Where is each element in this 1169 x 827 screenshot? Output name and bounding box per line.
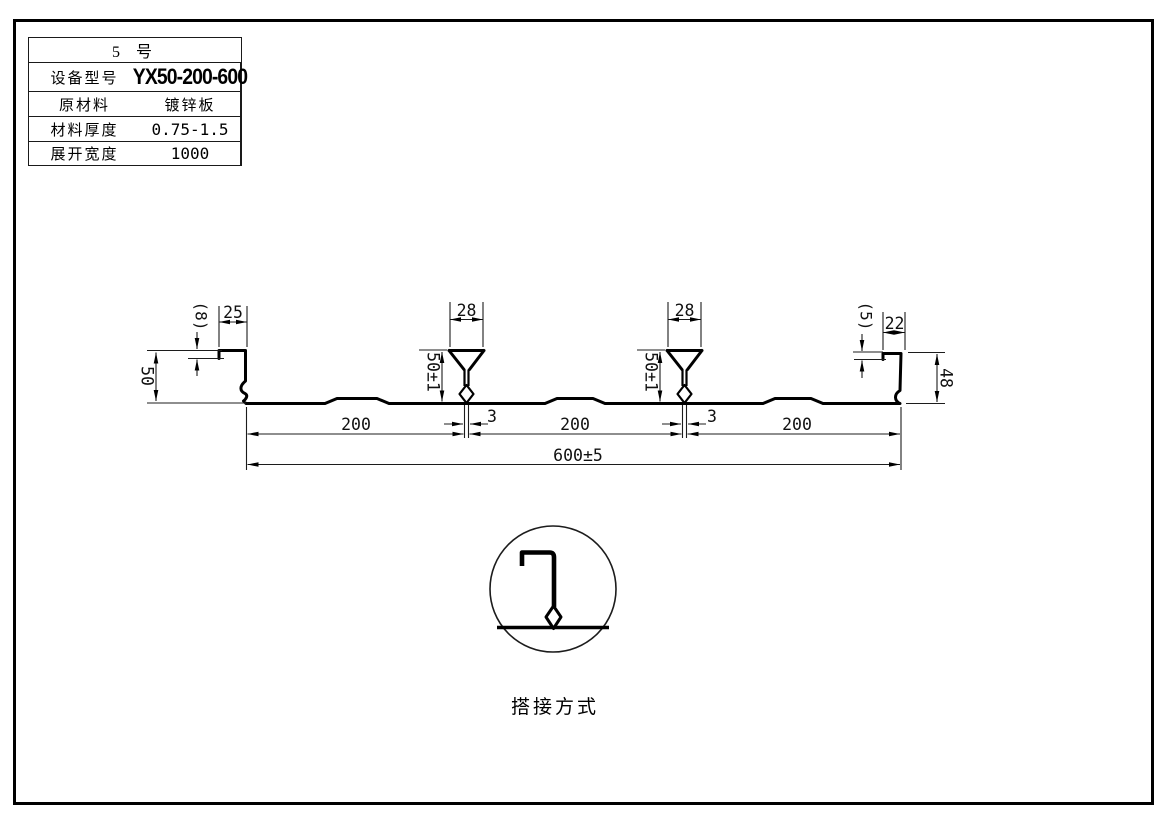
dim-pitch2-text: 200 [560,415,590,434]
profile-section [219,351,901,404]
dim-left-lip-text: (8) [192,302,211,331]
rib2-lock-diamond [678,385,692,403]
profile-drawing: (8) 25 50 28 50±1 28 50±1 (5) 22 [0,0,1169,827]
dim-overall-text: 600±5 [553,446,603,465]
dim-pitch3-text: 200 [782,415,812,434]
rib1-stem [465,370,469,387]
rib1-funnel [449,351,484,370]
dim-rib2-width-text: 28 [675,301,695,320]
extension-lines [147,302,945,470]
dim-gap2-text: 3 [707,407,717,426]
dim-rib1-width-text: 28 [457,301,477,320]
dim-left-height-text: 50 [138,366,157,386]
detail-label: 搭接方式 [511,696,599,718]
rib2-funnel [667,351,702,370]
dim-right-height-text: 48 [937,368,956,388]
rib2-stem [683,370,687,387]
profile-outline [219,351,901,404]
dim-right-lip-text: (5) [857,302,876,331]
detail-hook [522,553,554,608]
dim-left-top-text: 25 [223,303,243,322]
lap-detail: 搭接方式 [490,526,616,718]
dim-rib2-height-text: 50±1 [642,352,661,392]
dimension-lines: (8) 25 50 28 50±1 28 50±1 (5) 22 [138,301,956,470]
dim-right-top-text: 22 [885,314,905,333]
rib1-lock-diamond [460,385,474,403]
drawing-sheet: 5 号 设备型号 YX50-200-600 原材料 镀锌板 材料厚度 0.75-… [0,0,1169,827]
dim-rib1-height-text: 50±1 [424,352,443,392]
dim-pitch1-text: 200 [341,415,371,434]
detail-lock-diamond [546,606,561,629]
dim-gap1-text: 3 [487,407,497,426]
